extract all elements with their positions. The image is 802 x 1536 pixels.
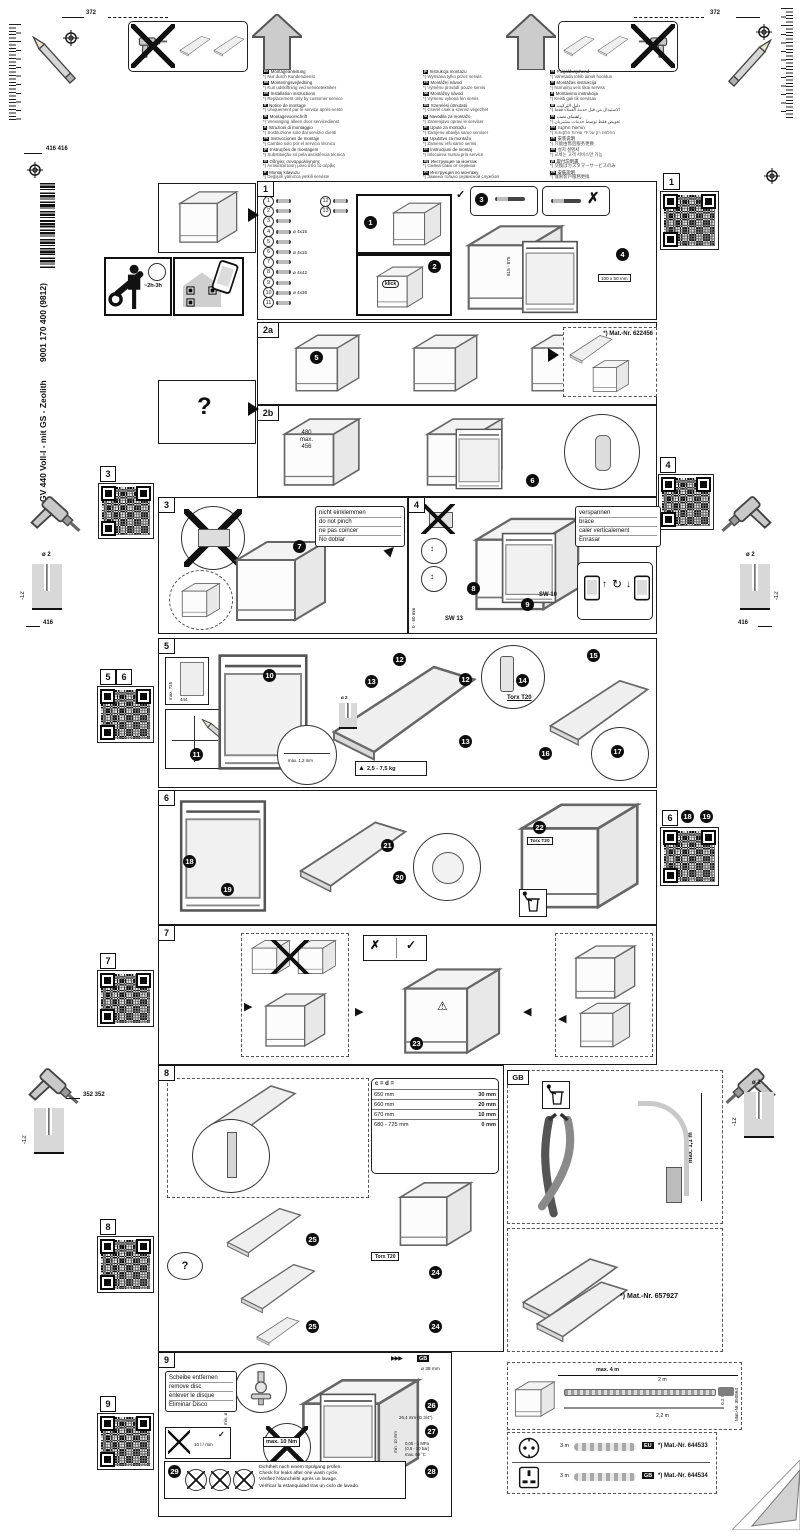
dim-value: 416: [43, 620, 53, 626]
pressure-specs: 0,05 - 1 MPa(0,5 - 10 bar)max. 60 °C: [405, 1441, 449, 1457]
question-panel: ?: [158, 380, 256, 444]
hinge-row-2-sketch: [203, 1262, 353, 1314]
cord-matnr-gb: *) Mat.-Nr. 644534: [658, 1473, 708, 1479]
part-size: ø 4x15: [293, 229, 307, 234]
language-entry: srUputstvo za montažu*) Zamenu vrši samo…: [423, 137, 543, 147]
callout-29: 29: [168, 1465, 181, 1478]
part-row: 4ø 4x15: [263, 227, 307, 237]
step-8-label: 8: [158, 1065, 175, 1081]
dim-value: 372: [86, 10, 96, 16]
cabinet-sketch: [276, 331, 376, 395]
step-1-parts-extra: 1213: [320, 196, 348, 216]
device-icon: [584, 575, 600, 601]
hose-max-length: max. 4 m: [596, 1367, 619, 1373]
language-subtitle: *) Zamenu vrši samo servis: [423, 141, 476, 146]
torx-label: Torx T20: [371, 1252, 399, 1261]
language-column-1: deMontageanleitung*) Nur durch Kundendie…: [263, 70, 415, 193]
furniture-panel-icon: [597, 27, 629, 65]
hinge-row-1-sketch: [189, 1206, 339, 1258]
note-line: Enrasar: [579, 535, 657, 544]
accessory-box-657927: *) Mat.-Nr. 657927: [507, 1228, 723, 1352]
plinth-sketch: [570, 1000, 638, 1050]
language-entry: ruИнструкция по монтажу*) Замена только …: [423, 171, 543, 181]
niche-sketch: [386, 200, 446, 248]
cabinet-sketch: [394, 331, 494, 395]
step-2b-box: 2b 480 max. 456 6: [257, 405, 657, 497]
gap-detail-circle: max. 1,2 mm: [277, 725, 337, 785]
latch-detail-circle: [564, 414, 640, 490]
language-entry: ko설치 설명서*) 교체는 고객 서비스만 가능: [550, 148, 658, 158]
part-glyph: [276, 250, 291, 254]
note-line: caler verticalement: [579, 526, 657, 535]
step-5-label: 5: [158, 638, 175, 654]
cross-icon: ✗: [587, 189, 600, 207]
step-7-box: 7 ▶ ✗ ✓ ⚠ 23 ▶ ▶ ▶: [158, 925, 657, 1065]
part-number: 11: [263, 297, 274, 308]
pencil-icon: [725, 34, 777, 89]
language-subtitle: *) Nomaiņu veic tikai serviss: [550, 85, 605, 90]
pointer-arrow-icon: [248, 402, 259, 416]
table-row: 650 mm30 mm: [372, 1089, 498, 1099]
part-glyph: [276, 240, 291, 244]
weight-icon: ▲: [358, 765, 365, 772]
callout-9: 9: [521, 598, 534, 611]
part-row: 10ø 4x36: [263, 288, 307, 298]
pinch-note: nicht einklemmendo not pinchne pas coinc…: [315, 506, 405, 547]
flow-icons: ▶▶▶: [391, 1355, 402, 1362]
check-icon: ✓: [218, 1430, 225, 1439]
drill-icon: [16, 482, 95, 561]
drill-template-left: [32, 564, 62, 610]
language-column-3: etPaigaldusjuhend*) Vahetada tohib ainul…: [550, 70, 658, 182]
note-line: do not pinch: [319, 517, 401, 526]
height-dims: 480 max. 456: [300, 430, 313, 451]
depth-table: c = d = 650 mm30 mm660 mm20 mm670 mm10 m…: [371, 1078, 499, 1174]
callout-13: 13: [365, 675, 378, 688]
base-sketch: [364, 264, 434, 310]
language-subtitle: *) Înlocuirea numai prin service: [423, 152, 483, 157]
language-subtitle: *) Смяна само от сервиза: [423, 163, 475, 168]
step-4-label: 4: [408, 497, 425, 513]
thread-dimension: 26,4 mm (G 3/4"): [399, 1415, 433, 1420]
language-entry: heהוראות התקנה*) החלפה רק על ידי שירות ה…: [550, 126, 658, 136]
depth-diagram-sketch: [375, 1178, 493, 1250]
wrench-size-13: SW 13: [445, 616, 463, 622]
furniture-panel-icon: [179, 27, 211, 65]
bin-icon: [520, 890, 544, 914]
gap-value: 30 mm: [478, 1092, 496, 1098]
step-1-detail-a: 1: [356, 194, 452, 254]
language-entry: roInstrucţiuni de montaj*) Înlocuirea nu…: [423, 148, 543, 158]
language-subtitle: *) Výmenu vykoná len servis: [423, 96, 478, 101]
smartphone-icon: [211, 259, 240, 296]
material-number: *) Mat.-Nr. 657927: [620, 1293, 678, 1300]
step-7-left-panel: ▶: [241, 933, 349, 1057]
drill-template-right-8: [744, 1092, 774, 1138]
hole-diameter: ø 38 mm: [421, 1367, 440, 1372]
step-2a-label: 2a: [257, 322, 279, 338]
tap-detail-circle: [235, 1363, 287, 1413]
language-subtitle: *) Substituição só pela assistência técn…: [263, 152, 345, 157]
callout-28: 28: [425, 1465, 438, 1478]
flow-rate: 10 l / min: [194, 1442, 213, 1447]
bin-icon: [544, 1083, 568, 1107]
part-row: 2: [263, 206, 307, 216]
corner-detail-circle: [169, 570, 233, 630]
remove-disc-note: Scheibe entfernenremove discenlever le d…: [165, 1371, 237, 1412]
furniture-panel-icon: [563, 27, 595, 65]
cabinet-depth: 650 mm: [374, 1092, 394, 1098]
qr-code-step-4: [658, 474, 714, 530]
note-line: Eliminar Disco: [169, 1400, 233, 1409]
callout-26: 26: [425, 1399, 438, 1412]
weight-range: 2,5 - 7,5 kg: [367, 766, 396, 772]
part-size: ø 4x36: [293, 290, 307, 295]
qr-code-step-1: [660, 191, 719, 250]
hinge-row-3-sketch: [203, 1316, 353, 1346]
part-number: 1: [263, 196, 274, 207]
step-9-label: 9: [158, 1352, 175, 1368]
product-number: 9001 170 400 (9812): [38, 272, 48, 362]
wrench-size-10: SW 10: [539, 592, 557, 598]
no-drill-cross-icon: [631, 24, 675, 68]
cabinet-sketch: [219, 536, 339, 626]
callout-11: 11: [190, 748, 203, 761]
dim-value: 416: [738, 620, 748, 626]
step-1-detail-b: 2 klick: [356, 254, 452, 316]
part-glyph: [276, 209, 291, 213]
step-6-box: 6 18 19 21 20 22 Torx T20: [158, 790, 657, 925]
corner-sketch: [178, 581, 222, 619]
page-curl: [732, 1460, 800, 1530]
height-dim-line: [701, 1093, 702, 1201]
check-icon: ✓: [406, 938, 416, 952]
language-entry: frNotice de montage*) Uniquement par le …: [263, 104, 415, 114]
level-app-inset: ↑ ↻ ↓: [577, 562, 653, 620]
part-glyph: [276, 281, 291, 285]
language-subtitle: *) Замена только сервисной службой: [423, 174, 499, 179]
install-time-box: ~2h-3h: [104, 257, 172, 316]
language-entry: ja取付説明書*) 交換はカスタマーサービスのみ: [550, 160, 658, 170]
cross-icon: ✗: [370, 938, 380, 952]
drill-icon: [706, 482, 785, 561]
language-entry: plInstrukcja montażu*) Wymiana tylko prz…: [423, 70, 543, 80]
qr-step-6-label: 6: [116, 669, 132, 685]
panel-prep-warning-left: [128, 21, 248, 72]
callout-25: 25: [306, 1233, 319, 1246]
qr-code-step-3: [98, 483, 154, 539]
torque-label: max. 10 Nm: [263, 1437, 300, 1447]
part-glyph: [276, 199, 291, 203]
plinth-sketch: [256, 990, 332, 1050]
callout-20: 20: [393, 871, 406, 884]
cross-icon: [168, 1430, 190, 1454]
part-glyph: [333, 199, 348, 203]
registration-mark-icon: [63, 30, 79, 46]
table-row: 670 mm10 mm: [372, 1109, 498, 1119]
step-5-box: 5 max. 725 444 11 10 12 13 12 13 ø 2 max…: [158, 638, 657, 788]
leak-line: Verificar la estanquidad tras un ciclo d…: [259, 1484, 401, 1490]
qr-step-1-label: 1: [663, 173, 680, 190]
callout-24: 24: [429, 1266, 442, 1279]
note-line: No doblar: [319, 535, 401, 544]
dishwasher-sketch: [454, 428, 504, 490]
language-entry: tw安裝說明*) 僅限客戶服務更換: [550, 171, 658, 181]
language-entry: huSzerelési útmutató*) Cserét csak a sze…: [423, 104, 543, 114]
language-entry: ptInstruções de montagem*) Substituição …: [263, 148, 415, 158]
qr-code-step-6: [660, 827, 719, 886]
part-number: 13: [320, 206, 331, 217]
callout-23: 23: [410, 1037, 423, 1050]
callout-7: 7: [293, 540, 306, 553]
callout-16: 16: [539, 747, 552, 760]
part-number: 5: [263, 236, 274, 247]
drill-diameter: ø 2: [341, 695, 348, 700]
divider: [512, 1462, 710, 1463]
callout-27: 27: [425, 1425, 438, 1438]
product-model: GV 440 Voll-I - mit GS - Zeolith: [38, 372, 48, 502]
cabinet-sketch: [566, 942, 642, 1002]
accessory-box-622456: *) Mat.-Nr. 622456: [563, 327, 657, 397]
language-subtitle: *) تعویض فقط توسط خدمات مشتریان: [550, 119, 620, 124]
no-tilt-icon: [421, 504, 455, 534]
black-arrow-icon: ▶: [558, 1012, 566, 1025]
black-arrow-icon: ▶: [244, 1000, 252, 1013]
flow-check-box: 10 l / min ✓: [165, 1427, 231, 1459]
leak-check-text: Dichtheit nach einem Spülgang prüfen.Che…: [259, 1465, 401, 1490]
qr-marker-icon: [186, 298, 194, 306]
foot-range-dim: 0 - 60 mm: [411, 594, 416, 628]
language-entry: elΟδηγίες συναρμολόγησης*) Αντικατάσταση…: [263, 160, 415, 170]
part-row: 11: [263, 298, 307, 308]
drill-depth-left: -12: [20, 574, 26, 600]
language-entry: zh安装说明*) 只能由售后服务更换: [550, 137, 658, 147]
part-row: 1: [263, 196, 307, 206]
qr-code-step-5-6: [97, 686, 154, 743]
qr-step-4-label: 4: [660, 457, 676, 473]
gb-drain-box: GB max. 1,1 m: [507, 1070, 723, 1224]
panel-stack-sketch: [532, 1279, 632, 1343]
note-line: nicht einklemmen: [319, 509, 401, 517]
dispose-box: [519, 889, 547, 917]
cabinet-top-sketch: [572, 358, 648, 394]
align-detail-circle: ↕: [421, 566, 447, 592]
drill-template-right: [740, 564, 770, 610]
cabinet-sketch: [270, 414, 370, 490]
furniture-panel-bent-icon: [213, 27, 245, 65]
step-7-label: 7: [158, 925, 175, 941]
stopwatch-icon: [148, 263, 166, 281]
dim-value: 416 416: [46, 146, 68, 152]
dispose-box: [542, 1081, 570, 1109]
hose-material-number: Mat.-Nr. 350564: [734, 1371, 739, 1421]
hose-2m: 2 m: [658, 1377, 667, 1383]
callout-3: 3: [475, 193, 488, 206]
mini-template: [339, 703, 357, 729]
check-icon: ✓: [456, 188, 465, 201]
callout-14: 14: [516, 674, 529, 687]
tap-icon: [246, 1368, 276, 1408]
device-icon: [634, 575, 650, 601]
qr-step-3-label: 3: [100, 466, 116, 482]
part-row: 8ø 4x42: [263, 267, 307, 277]
crop-ruler-top-left-long: [16, 24, 21, 120]
part-number: 12: [320, 196, 331, 207]
leak-check-strip: 29 Dichtheit nach einem Spülgang prüfen.…: [164, 1461, 406, 1499]
dim-max: max.: [300, 437, 313, 444]
callout-17: 17: [611, 745, 624, 758]
ceiling-fix-panel: [167, 1078, 369, 1198]
dim-456: 456: [300, 444, 313, 451]
step-6-label: 6: [158, 790, 175, 806]
gb-badge: GB: [642, 1472, 654, 1479]
part-glyph: [276, 291, 291, 295]
barcode: [40, 183, 55, 268]
language-entry: etPaigaldusjuhend*) Vahetada tohib ainul…: [550, 70, 658, 80]
part-glyph: [276, 230, 291, 234]
gb-label: GB: [507, 1070, 529, 1085]
torx-label: Torx T20: [507, 695, 532, 701]
registration-mark-icon: [27, 162, 43, 178]
dim-480: 480: [300, 430, 313, 437]
standpipe-sketch: [666, 1167, 682, 1203]
step-1-box: 1 1234ø 4x1556ø 4x1578ø 4x42910ø 4x3611 …: [257, 181, 657, 320]
language-column-2: plInstrukcja montażu*) Wymiana tylko prz…: [423, 70, 543, 193]
pointer-arrow-icon: [248, 208, 259, 222]
language-subtitle: *) Replacement only by customer service: [263, 96, 343, 101]
sync-arrow-glyph: ↻: [612, 577, 622, 591]
drill-depth-right: -12: [774, 574, 780, 600]
part-glyph: [333, 209, 348, 213]
callout-24b: 24: [429, 1320, 442, 1333]
table-header: c = d =: [372, 1079, 498, 1089]
spec-line: max. 60 °C: [405, 1452, 449, 1457]
question-cloud: ?: [167, 1252, 203, 1280]
language-subtitle: *) Sostituzione solo dal servizio client…: [263, 130, 336, 135]
callout-12: 12: [393, 653, 406, 666]
pliers-icon: [518, 1113, 608, 1218]
cabinet-depth: 680 - 725 mm: [374, 1122, 409, 1128]
part-glyph: [276, 301, 291, 305]
qr-step-9-label: 9: [100, 1396, 116, 1412]
power-cords-box: 3 m EU *) Mat.-Nr. 644533 3 m GB *) Mat.…: [507, 1432, 717, 1494]
language-subtitle: *) 교체는 고객 서비스만 가능: [550, 152, 602, 157]
uk-socket-icon: [518, 1466, 540, 1489]
cabinet-sketch: [167, 188, 247, 246]
qr-step-8-label: 8: [100, 1219, 116, 1235]
callout-21: 21: [381, 839, 394, 852]
part-row: 3: [263, 216, 307, 226]
step-3-box: 3 7 nicht einklemmendo not pinchne pas c…: [158, 497, 408, 634]
gap-value: 10 mm: [478, 1112, 496, 1118]
installation-sheet: 372 372 deMontageanleitung*) Nur durch K…: [0, 0, 802, 1536]
plinth-adjust-sketch: [385, 963, 515, 1059]
step-1-parts-list: 1234ø 4x1556ø 4x1578ø 4x42910ø 4x3611: [263, 196, 307, 308]
language-entry: nlMontagevoorschrift*) Vervanging alleen…: [263, 115, 415, 125]
question-mark: ?: [197, 393, 212, 421]
language-subtitle: *) Výměnu provádí pouze servis: [423, 85, 485, 90]
cross-icon: [270, 940, 310, 974]
callout-1: 1: [364, 216, 377, 229]
language-subtitle: *) Keisti gali tik servisas: [550, 96, 596, 101]
language-entry: itIstruzioni di montaggio*) Sostituzione…: [263, 126, 415, 136]
callout-18-ref: 18: [681, 810, 694, 823]
inlet-hose-sketch: [564, 1407, 724, 1409]
language-subtitle: *) 只能由售后服务更换: [550, 141, 594, 146]
language-subtitle: *) Wymiana tylko przez serwis: [423, 74, 482, 79]
step-1-detail-ok: 3: [470, 186, 538, 216]
language-subtitle: *) Uniquement par le service après-vente: [263, 107, 343, 112]
qr-code-step-7: [97, 970, 154, 1027]
step-1-label: 1: [257, 181, 274, 197]
callout-6: 6: [526, 474, 539, 487]
qr-step-7-label: 7: [100, 953, 116, 969]
callout-18: 18: [183, 855, 196, 868]
dim-value: 352 352: [83, 1092, 105, 1098]
language-entry: arدليل التركيب*) الاستبدال من قبل خدمة ا…: [550, 104, 658, 114]
niche-height-dim: 815 - 875: [506, 230, 511, 276]
hose-end-sketch: [718, 1387, 734, 1396]
drill-diameter-left: ø 2: [42, 552, 51, 558]
language-subtitle: *) Değişim yalnızca yetkili serviste: [263, 174, 329, 179]
language-subtitle: *) 交換はカスタマーサービスのみ: [550, 163, 616, 168]
part-glyph: [276, 260, 291, 264]
note-line: brace: [579, 517, 657, 526]
hinge-detail-circle: [413, 833, 481, 901]
note-line: ne pas coincer: [319, 526, 401, 535]
warning-icon: ⚠: [437, 999, 448, 1013]
language-subtitle: *) החלפה רק על ידי שירות הלקוחות: [550, 130, 615, 135]
callout-19-ref: 19: [700, 810, 713, 823]
panel-prep-warning-right: [558, 21, 678, 72]
callout-13b: 13: [459, 735, 472, 748]
part-row: 13: [320, 206, 348, 216]
language-subtitle: *) Vervanging alleen door servicedienst: [263, 119, 339, 124]
note-line: verspannen: [579, 509, 657, 517]
klick-label: klick: [382, 280, 399, 288]
table-row: 660 mm20 mm: [372, 1099, 498, 1109]
dishwasher-sketch: [520, 240, 580, 314]
cord-length-eu: 3 m: [560, 1443, 569, 1449]
up-arrow-glyph: ↑: [602, 579, 607, 590]
brace-note: verspannenbracecaler verticalementEnrasa…: [575, 506, 661, 547]
callout-15: 15: [587, 649, 600, 662]
cord-length-gb: 3 m: [560, 1473, 569, 1479]
gb-badge: GB: [417, 1355, 429, 1362]
drain-hose-sketch: [564, 1389, 716, 1396]
sink-unit-sketch: [512, 1375, 556, 1423]
language-entry: trMontaj kılavuzu*) Değişim yalnızca yet…: [263, 171, 415, 181]
panel-max-height: max. 725: [168, 662, 173, 700]
qr-code-step-9: [97, 1413, 154, 1470]
cross-icon: [421, 504, 455, 534]
callout-19: 19: [221, 883, 234, 896]
up-arrow-icon: [506, 14, 556, 70]
intro-panel-cabinet: [158, 183, 256, 253]
gap-value: 20 mm: [478, 1102, 496, 1108]
table-rows: 650 mm30 mm660 mm20 mm670 mm10 mm680 - 7…: [372, 1089, 498, 1129]
language-subtitle: *) Cambio solo por el servicio técnico: [263, 141, 335, 146]
language-entry: daMonteringsvejledning*) Kun udskiftning…: [263, 81, 415, 91]
black-arrow-icon: ▶: [355, 1005, 363, 1018]
crop-ruler-top-left: [9, 24, 16, 120]
drill-depth: -12: [22, 1118, 28, 1144]
screw-detail-circle: [192, 1119, 270, 1193]
align-detail-circle: ↕: [421, 538, 447, 564]
black-arrow-icon: ▶: [523, 1005, 531, 1018]
language-entry: faراهنمای نصب*) تعویض فقط توسط خدمات مشت…: [550, 115, 658, 125]
drill-depth: -12: [732, 1100, 738, 1126]
